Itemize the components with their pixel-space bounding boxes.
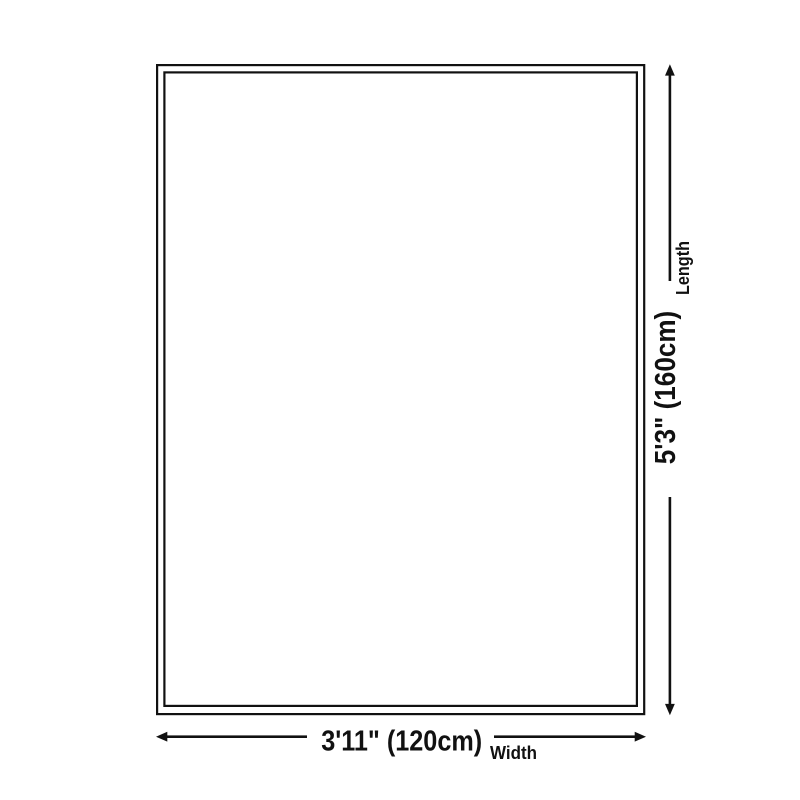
svg-text:Width: Width — [490, 743, 537, 763]
svg-text:Length: Length — [673, 241, 693, 295]
svg-text:5'3" (160cm): 5'3" (160cm) — [650, 311, 682, 465]
svg-text:3'11" (120cm): 3'11" (120cm) — [321, 725, 482, 757]
